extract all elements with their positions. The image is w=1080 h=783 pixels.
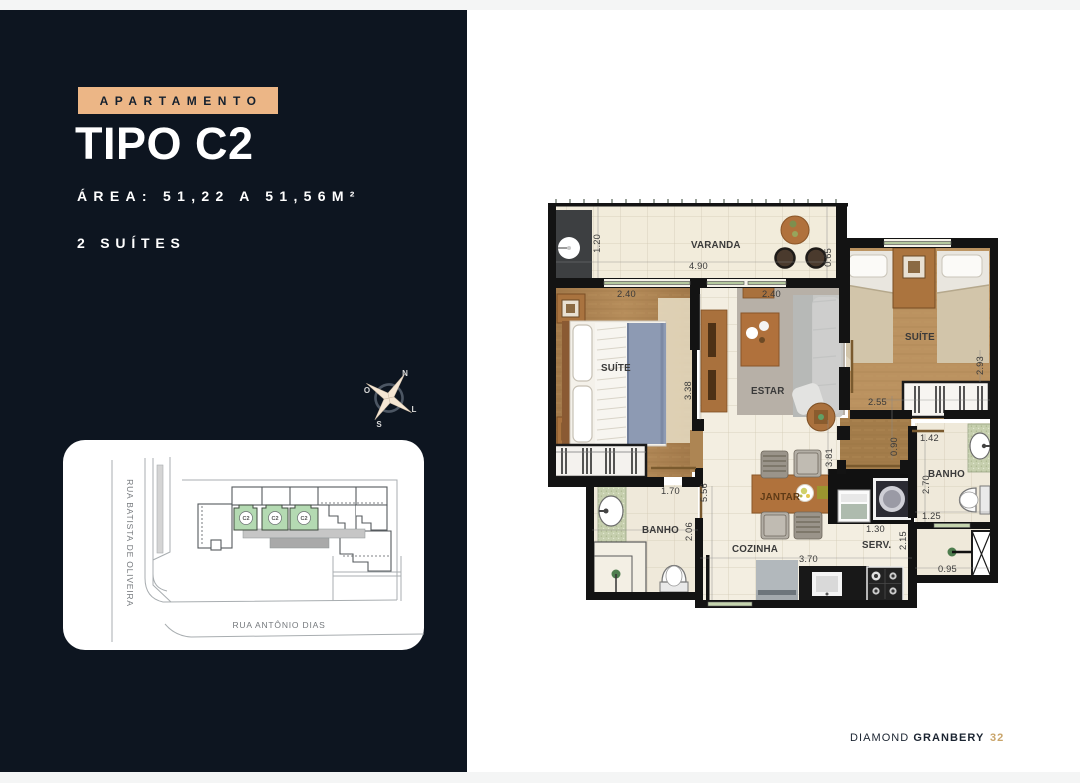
svg-text:1.70: 1.70 bbox=[661, 486, 680, 496]
svg-text:0.90: 0.90 bbox=[889, 437, 899, 456]
svg-text:2.70: 2.70 bbox=[921, 475, 931, 494]
svg-text:2.93: 2.93 bbox=[975, 356, 985, 375]
svg-text:SUÍTE: SUÍTE bbox=[905, 331, 935, 343]
svg-text:0.95: 0.95 bbox=[938, 564, 957, 574]
svg-text:3.38: 3.38 bbox=[683, 381, 693, 400]
svg-text:5.56: 5.56 bbox=[699, 483, 709, 502]
svg-text:SUÍTE: SUÍTE bbox=[601, 362, 631, 374]
svg-text:RUA ANTÔNIO DIAS: RUA ANTÔNIO DIAS bbox=[232, 620, 325, 630]
svg-text:N: N bbox=[402, 369, 408, 378]
svg-text:2.15: 2.15 bbox=[898, 531, 908, 550]
svg-text:1.30: 1.30 bbox=[866, 524, 885, 534]
svg-text:O: O bbox=[364, 386, 370, 395]
svg-text:1.20: 1.20 bbox=[592, 234, 602, 253]
svg-text:VARANDA: VARANDA bbox=[691, 240, 741, 251]
svg-text:3.70: 3.70 bbox=[799, 554, 818, 564]
svg-text:2.55: 2.55 bbox=[868, 397, 887, 407]
svg-text:2.40: 2.40 bbox=[762, 289, 781, 299]
svg-text:2.06: 2.06 bbox=[684, 522, 694, 541]
svg-text:2.40: 2.40 bbox=[617, 289, 636, 299]
svg-text:SERV.: SERV. bbox=[862, 540, 891, 551]
svg-text:L: L bbox=[412, 405, 417, 414]
svg-text:S: S bbox=[376, 420, 382, 429]
svg-text:C2: C2 bbox=[271, 516, 278, 522]
svg-text:BANHO: BANHO bbox=[928, 469, 965, 480]
svg-text:3.81: 3.81 bbox=[824, 448, 834, 467]
svg-text:C2: C2 bbox=[300, 516, 307, 522]
svg-text:BANHO: BANHO bbox=[642, 525, 679, 536]
svg-text:RUA BATISTA DE OLIVEIRA: RUA BATISTA DE OLIVEIRA bbox=[125, 479, 135, 607]
svg-text:C2: C2 bbox=[242, 516, 249, 522]
svg-text:1.25: 1.25 bbox=[922, 511, 941, 521]
svg-text:ESTAR: ESTAR bbox=[751, 386, 784, 397]
svg-text:COZINHA: COZINHA bbox=[732, 544, 778, 555]
svg-text:1.42: 1.42 bbox=[920, 433, 939, 443]
svg-text:4.90: 4.90 bbox=[689, 261, 708, 271]
svg-text:0.65: 0.65 bbox=[823, 248, 833, 267]
svg-text:JANTAR: JANTAR bbox=[760, 492, 800, 503]
